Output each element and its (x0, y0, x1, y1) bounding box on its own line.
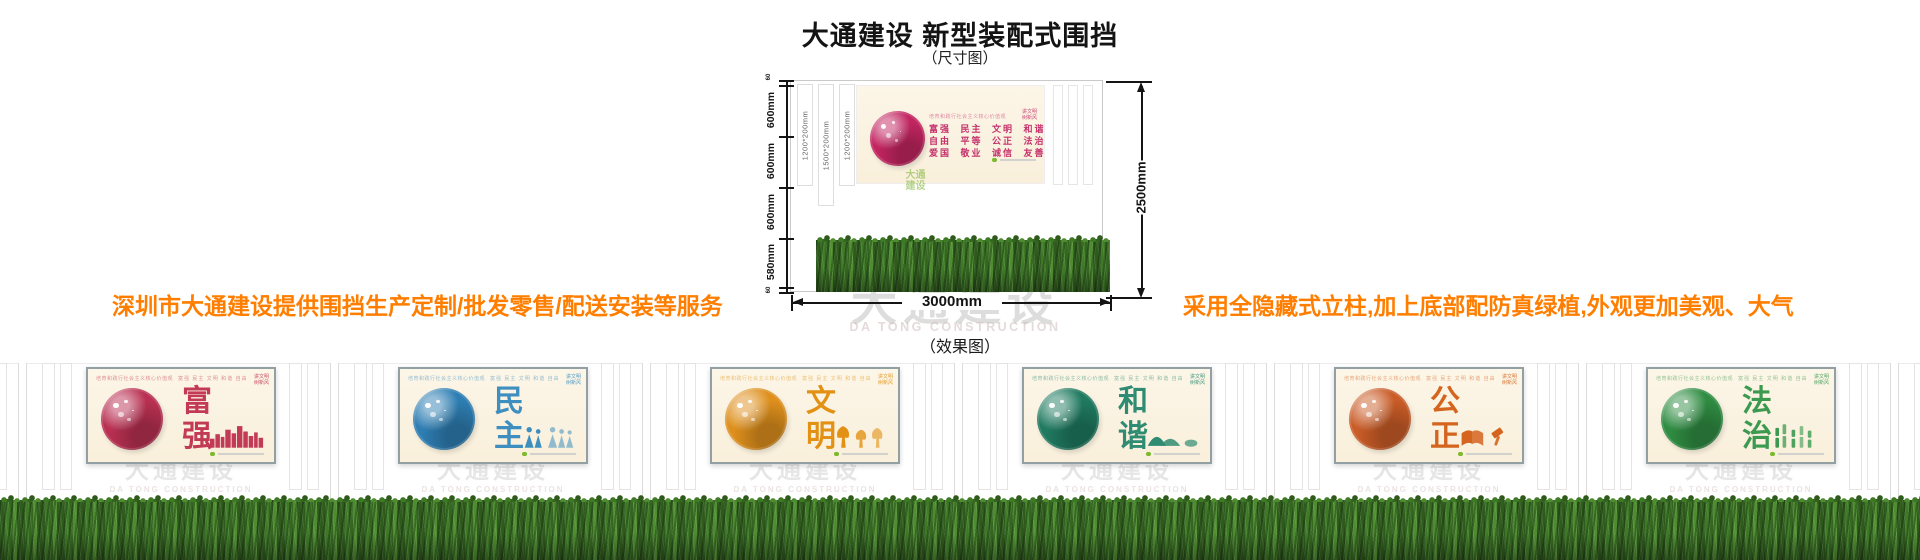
dimension-line (786, 80, 788, 292)
fence-post-strip (1914, 363, 1920, 490)
panel-header-text: 培育和践行社会主义核心价值观富强 民主 文明 和谐 自由 平等 公正 法治 爱国… (96, 375, 246, 382)
fine-print-line (522, 452, 576, 457)
fence-post-strip (1620, 363, 1632, 490)
fence-column-divider (1266, 363, 1275, 503)
post-outline (1083, 85, 1093, 185)
hedge-drawing (816, 240, 1110, 292)
extension-line (1106, 81, 1152, 83)
fence-column-divider (18, 363, 27, 503)
fence-post-strip (684, 363, 696, 490)
core-value-panel-2: 培育和践行社会主义核心价值观富强 民主 文明 和谐 自由 平等 公正 法治 爱国… (398, 367, 588, 464)
civility-badge: 讲文明 树新风 (254, 374, 269, 386)
people-icon (522, 423, 576, 449)
green-dot-icon (210, 452, 215, 457)
dimension-tick (779, 85, 794, 87)
dimension-arrow-down-icon (1137, 288, 1145, 298)
dimension-tick (779, 80, 794, 82)
civility-badge: 讲文明 树新风 (1814, 374, 1829, 386)
fine-print-line (1458, 452, 1512, 457)
fence-post-strip (931, 363, 943, 490)
civility-badge: 讲文明 树新风 (1190, 374, 1205, 386)
fence-post-strip (601, 363, 614, 490)
core-values-panel-drawing: 培育和践行社会主义核心价值观 富强 民主 文明 和谐 自由 平等 公正 法治 爱… (856, 85, 1045, 184)
core-value-word: 民主 (492, 384, 526, 454)
civility-badge: 讲文明 树新风 (1022, 109, 1037, 121)
civility-badge: 讲文明 树新风 (878, 374, 893, 386)
green-dot-icon (1770, 452, 1775, 457)
fence-column-divider (1578, 363, 1587, 503)
panel-header-text: 培育和践行社会主义核心价值观富强 民主 文明 和谐 自由 平等 公正 法治 爱国… (1032, 375, 1182, 382)
green-dot-icon (522, 452, 527, 457)
fence-post-strip (1602, 363, 1615, 490)
green-dot-icon (992, 158, 997, 163)
post-size-label: 1200*200mm (843, 110, 852, 160)
panel-header-text: 培育和践行社会主义核心价值观富强 民主 文明 和谐 自由 平等 公正 法治 爱国… (1344, 375, 1494, 382)
dimension-diagram-label: （尺寸图） (0, 47, 1920, 68)
fence-post-strip (0, 363, 7, 490)
core-value-panel-5: 培育和践行社会主义核心价值观富强 民主 文明 和谐 自由 平等 公正 法治 爱国… (1334, 367, 1524, 464)
trees-icon (834, 423, 888, 449)
papercut-circle-illustration (413, 388, 475, 450)
fine-print-line (834, 452, 888, 457)
dimension-tick (779, 187, 794, 189)
fence-post-strip (996, 363, 1008, 490)
core-value-panel-6: 培育和践行社会主义核心价值观富强 民主 文明 和谐 自由 平等 公正 法治 爱国… (1646, 367, 1836, 464)
civility-badge: 讲文明 树新风 (566, 374, 581, 386)
panel-header-text: 培育和践行社会主义核心价值观 (929, 113, 1006, 120)
segment-label: 580mm (765, 240, 779, 284)
fence-post-strip (913, 363, 926, 490)
core-values-rows: 富强 民主 文明 和谐 自由 平等 公正 法治 爱国 敬业 诚信 友善 (929, 123, 1046, 159)
fine-print-line (992, 158, 1036, 163)
papercut-circle-illustration (1037, 388, 1099, 450)
book-gavel-icon (1458, 423, 1512, 449)
dimension-arrow-right-icon (1100, 298, 1110, 306)
fine-print-line (1146, 452, 1200, 457)
dimension-arrow-left-icon (793, 298, 803, 306)
segment-label: 60 (766, 71, 778, 83)
fine-print-line (1770, 452, 1824, 457)
fence-post-strip (1290, 363, 1303, 490)
core-value-word: 富强 (180, 384, 214, 454)
dimension-arrow-up-icon (1137, 82, 1145, 92)
brand-logo: 大通建设 (903, 170, 928, 192)
core-value-panel-3: 培育和践行社会主义核心价值观富强 民主 文明 和谐 自由 平等 公正 法治 爱国… (710, 367, 900, 464)
fence-post-strip (1555, 363, 1567, 490)
papercut-circle-illustration (1661, 388, 1723, 450)
promo-text-right: 采用全隐藏式立柱,加上底部配防真绿植,外观更加美观、大气 (1183, 287, 1794, 321)
fence-post-strip (1225, 363, 1238, 490)
extension-line (1106, 297, 1152, 299)
core-value-word: 法治 (1740, 384, 1774, 454)
fence-post-strip (978, 363, 991, 490)
core-value-word: 文明 (804, 384, 838, 454)
post-outline: 1500*200mm (818, 84, 834, 206)
fence-post-strip (42, 363, 55, 490)
core-value-panel-1: 培育和践行社会主义核心价值观富强 民主 文明 和谐 自由 平等 公正 法治 爱国… (86, 367, 276, 464)
dimension-tick (779, 287, 794, 289)
fence-post-strip (307, 363, 319, 490)
bamboo-icon (1770, 423, 1824, 449)
watermark-en: DA TONG CONSTRUCTION (838, 320, 1072, 334)
segment-label: 600mm (765, 139, 779, 183)
fence-column-divider (1890, 363, 1899, 503)
papercut-circle-illustration (1349, 388, 1411, 450)
total-height-label: 2500mm (1134, 161, 1149, 215)
fence-post-strip (1243, 363, 1255, 490)
fence-column-divider (642, 363, 651, 503)
panel-header-text: 培育和践行社会主义核心价值观富强 民主 文明 和谐 自由 平等 公正 法治 爱国… (408, 375, 558, 382)
core-value-word: 公正 (1428, 384, 1462, 454)
poster-canvas: 大通建设 新型装配式围挡 （尺寸图） 深圳市大通建设提供围挡生产定制/批发零售/… (0, 0, 1920, 560)
segment-label: 600mm (765, 88, 779, 132)
promo-text-left: 深圳市大通建设提供围挡生产定制/批发零售/配送安装等服务 (112, 287, 723, 321)
dimension-tick (779, 136, 794, 138)
fence-post-strip (1867, 363, 1879, 490)
effect-diagram-label: （效果图） (0, 333, 1920, 357)
civility-badge: 讲文明 树新风 (1502, 374, 1517, 386)
fence-column-divider (954, 363, 963, 503)
post-outline (1053, 85, 1063, 185)
post-outline: 1200*200mm (839, 84, 855, 186)
green-dot-icon (834, 452, 839, 457)
dimension-tick (779, 292, 794, 294)
segment-label: 60 (766, 284, 778, 296)
city-skyline-icon (210, 423, 264, 449)
post-outline: 1200*200mm (797, 84, 813, 186)
fence-post-strip (1537, 363, 1550, 490)
panel-header-text: 培育和践行社会主义核心价值观富强 民主 文明 和谐 自由 平等 公正 法治 爱国… (1656, 375, 1806, 382)
papercut-circle-illustration (725, 388, 787, 450)
green-dot-icon (1458, 452, 1463, 457)
post-size-label: 1500*200mm (822, 120, 831, 170)
fence-post-strip (354, 363, 367, 490)
panel-header-text: 培育和践行社会主义核心价值观富强 民主 文明 和谐 自由 平等 公正 法治 爱国… (720, 375, 870, 382)
fence-post-strip (1308, 363, 1320, 490)
total-width-label: 3000mm (902, 293, 1002, 310)
fence-post-strip (619, 363, 631, 490)
post-size-label: 1200*200mm (801, 110, 810, 160)
green-dot-icon (1146, 452, 1151, 457)
papercut-circle-illustration (101, 388, 163, 450)
papercut-circle-illustration (870, 111, 925, 166)
mountains-icon (1146, 423, 1200, 449)
segment-label: 600mm (765, 190, 779, 234)
core-value-panel-4: 培育和践行社会主义核心价值观富强 民主 文明 和谐 自由 平等 公正 法治 爱国… (1022, 367, 1212, 464)
fence-post-strip (1849, 363, 1862, 490)
fine-print-line (210, 452, 264, 457)
artificial-hedge (0, 500, 1920, 560)
fence-post-strip (666, 363, 679, 490)
fence-post-strip (372, 363, 384, 490)
core-value-word: 和谐 (1116, 384, 1150, 454)
fence-column-divider (330, 363, 339, 503)
fence-post-strip (289, 363, 302, 490)
dimension-tick (779, 238, 794, 240)
fence-post-strip (60, 363, 72, 490)
post-outline (1068, 85, 1078, 185)
